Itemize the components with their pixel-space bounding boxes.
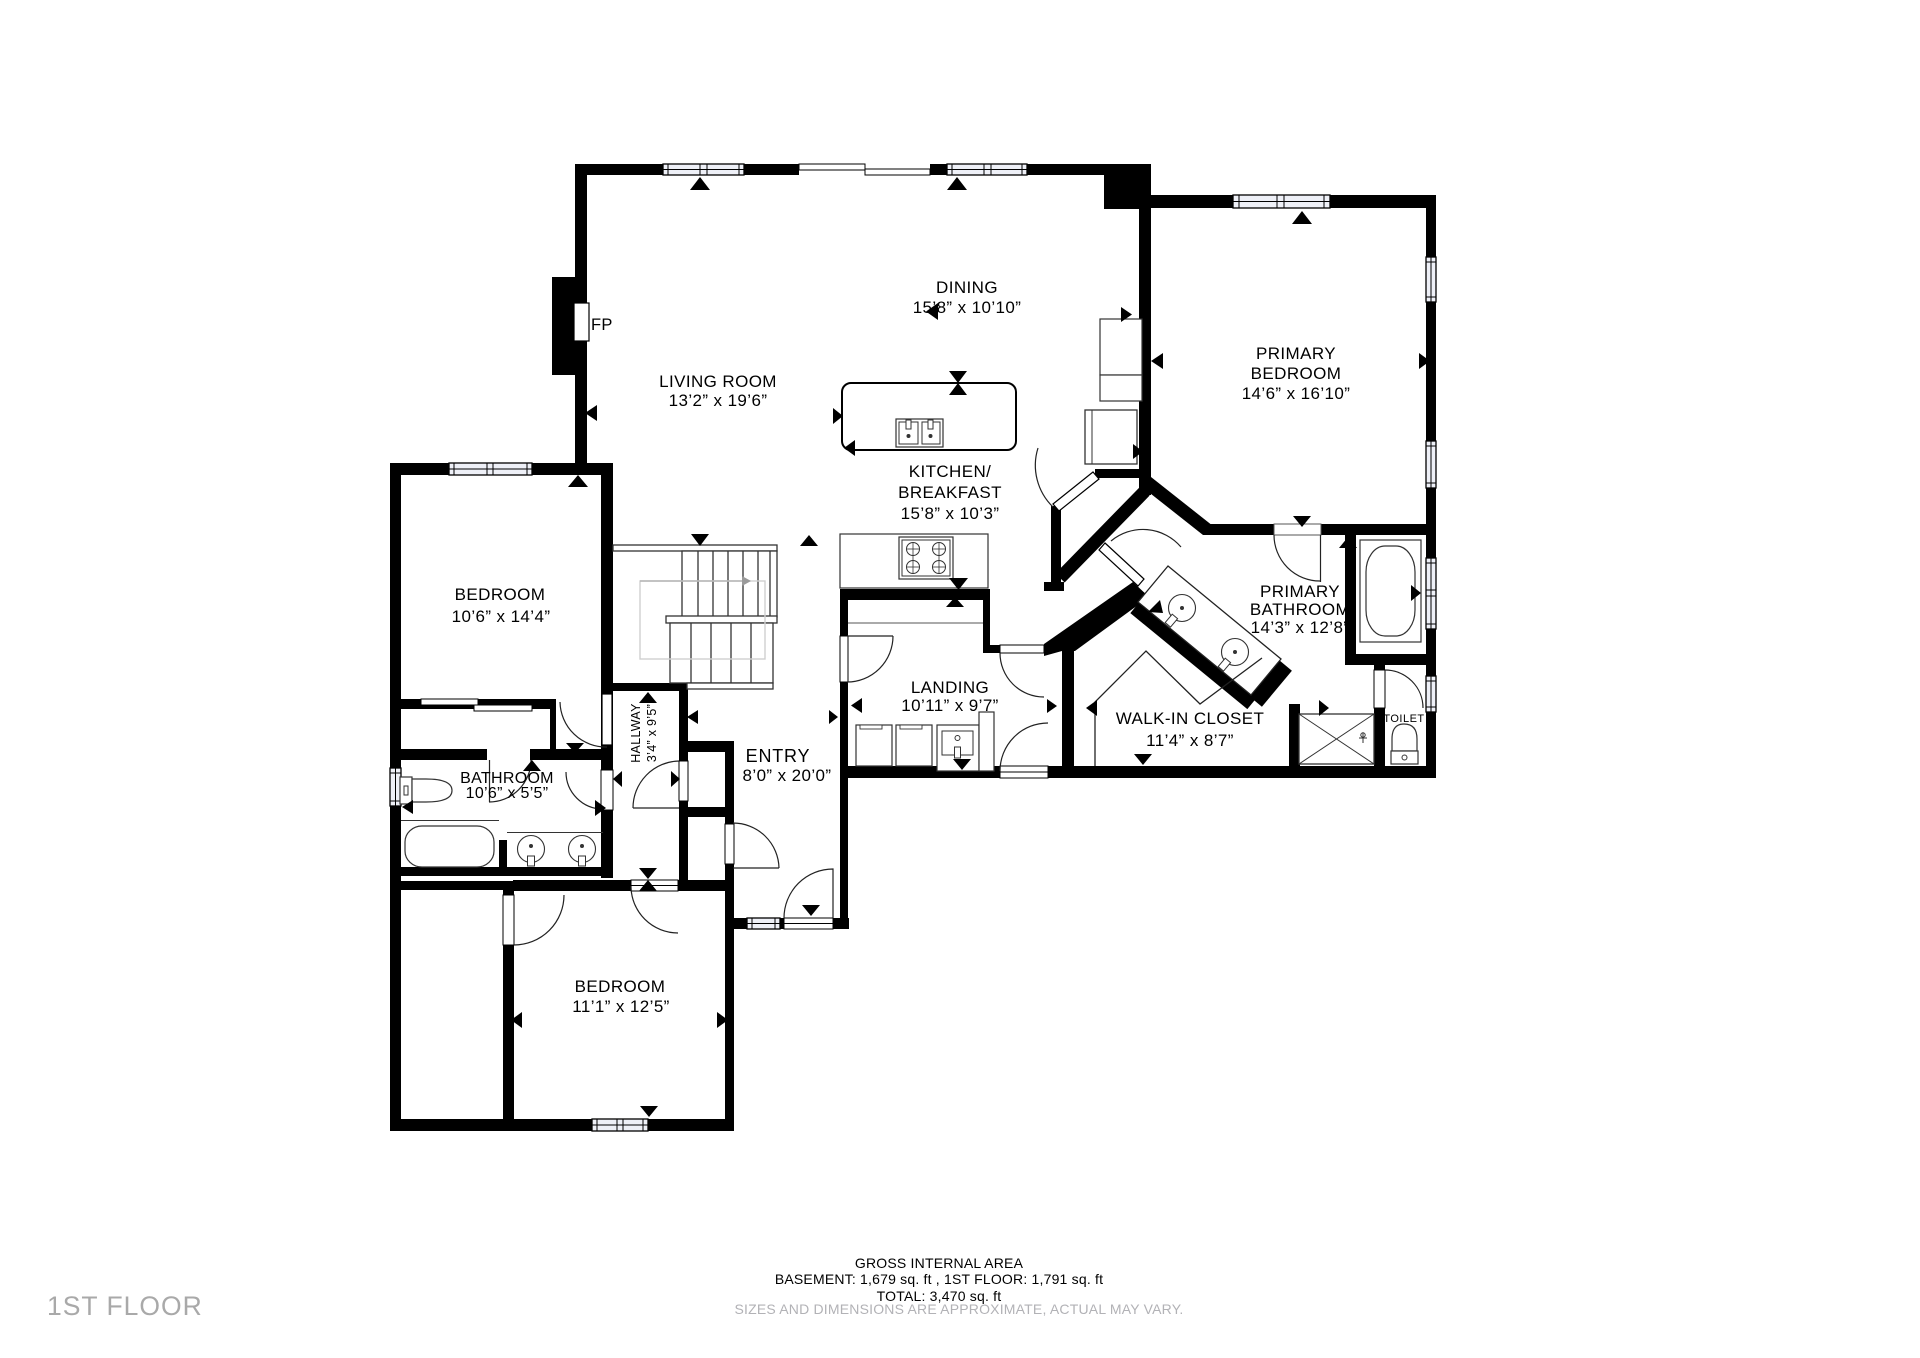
svg-text:BEDROOM: BEDROOM: [575, 977, 666, 996]
svg-text:LANDING: LANDING: [911, 678, 989, 697]
svg-text:13’2” x 19’6”: 13’2” x 19’6”: [669, 391, 768, 410]
svg-text:KITCHEN/: KITCHEN/: [909, 462, 992, 481]
svg-text:ENTRY: ENTRY: [746, 746, 811, 766]
svg-text:BASEMENT: 1,679 sq. ft , 1ST F: BASEMENT: 1,679 sq. ft , 1ST FLOOR: 1,79…: [775, 1271, 1103, 1287]
svg-text:WALK-IN CLOSET: WALK-IN CLOSET: [1116, 709, 1265, 728]
svg-text:14’6” x 16’10”: 14’6” x 16’10”: [1242, 384, 1351, 403]
svg-text:LIVING ROOM: LIVING ROOM: [659, 372, 777, 391]
svg-text:1ST FLOOR: 1ST FLOOR: [47, 1291, 203, 1321]
svg-text:FP: FP: [591, 316, 613, 334]
svg-text:10’6” x 14’4”: 10’6” x 14’4”: [452, 607, 551, 626]
svg-text:8’0” x 20’0”: 8’0” x 20’0”: [743, 766, 832, 785]
svg-text:11’1” x 12’5”: 11’1” x 12’5”: [572, 997, 670, 1016]
svg-text:BEDROOM: BEDROOM: [1251, 364, 1342, 383]
svg-text:10’6” x 5’5”: 10’6” x 5’5”: [466, 785, 549, 802]
svg-text:PRIMARY: PRIMARY: [1256, 344, 1336, 363]
svg-text:SIZES AND DIMENSIONS ARE APPRO: SIZES AND DIMENSIONS ARE APPROXIMATE, AC…: [734, 1301, 1183, 1317]
svg-text:10’11” x 9’7”: 10’11” x 9’7”: [901, 696, 999, 715]
svg-text:HALLWAY: HALLWAY: [629, 703, 643, 763]
svg-text:BREAKFAST: BREAKFAST: [898, 483, 1002, 502]
svg-text:DINING: DINING: [936, 278, 998, 297]
svg-text:15’8” x 10’3”: 15’8” x 10’3”: [901, 504, 1000, 523]
svg-text:BATHROOM: BATHROOM: [1250, 600, 1350, 619]
svg-text:14’3” x 12’8”: 14’3” x 12’8”: [1251, 618, 1350, 637]
svg-text:PRIMARY: PRIMARY: [1260, 582, 1340, 601]
svg-text:11’4” x 8’7”: 11’4” x 8’7”: [1146, 731, 1234, 750]
svg-text:GROSS INTERNAL AREA: GROSS INTERNAL AREA: [855, 1255, 1024, 1271]
svg-text:BEDROOM: BEDROOM: [455, 585, 546, 604]
svg-text:3’4” x 9’5”: 3’4” x 9’5”: [645, 704, 659, 762]
svg-text:TOILET: TOILET: [1383, 713, 1424, 725]
svg-text:15’8” x 10’10”: 15’8” x 10’10”: [913, 298, 1022, 317]
